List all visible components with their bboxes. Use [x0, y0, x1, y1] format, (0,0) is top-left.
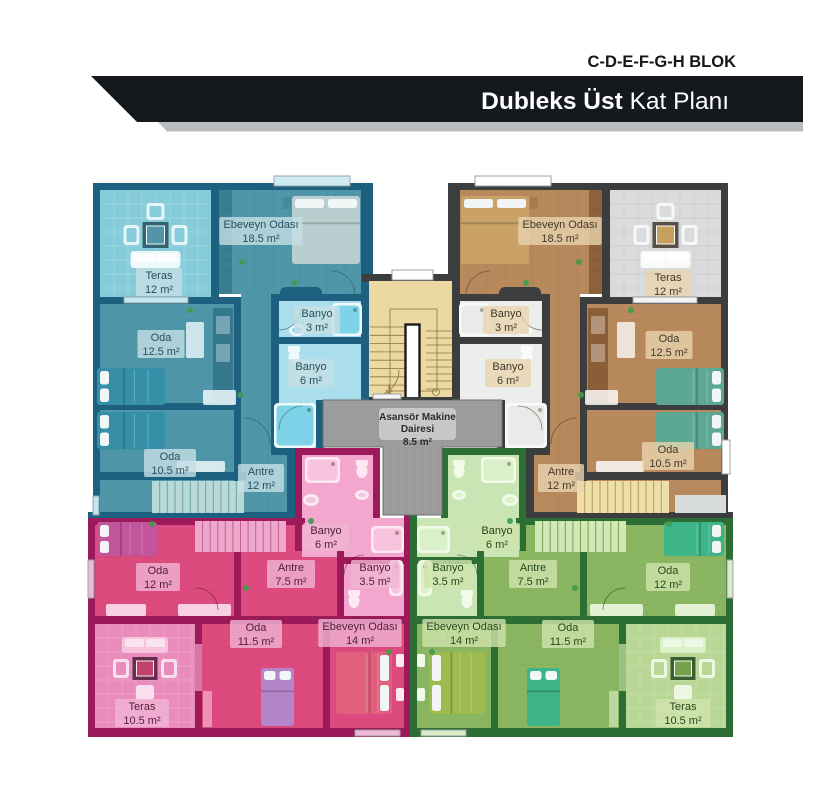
svg-text:Banyo: Banyo: [492, 361, 523, 373]
svg-text:18.5 m²: 18.5 m²: [541, 233, 579, 245]
svg-text:Ebeveyn Odası: Ebeveyn Odası: [426, 621, 501, 633]
svg-text:Oda: Oda: [160, 451, 182, 463]
svg-text:Ebeveyn Odası: Ebeveyn Odası: [322, 621, 397, 633]
svg-text:Teras: Teras: [129, 701, 156, 713]
svg-text:Oda: Oda: [658, 444, 680, 456]
svg-text:Teras: Teras: [146, 270, 173, 282]
svg-text:6 m²: 6 m²: [315, 539, 337, 551]
svg-text:Oda: Oda: [659, 333, 681, 345]
svg-text:Antre: Antre: [278, 562, 304, 574]
svg-text:Teras: Teras: [655, 272, 682, 284]
svg-text:Asansör Makine: Asansör Makine: [379, 412, 456, 423]
svg-text:Ebeveyn Odası: Ebeveyn Odası: [223, 219, 298, 231]
svg-text:6 m²: 6 m²: [300, 375, 322, 387]
svg-text:7.5 m²: 7.5 m²: [275, 576, 307, 588]
svg-text:Oda: Oda: [246, 622, 268, 634]
svg-text:Oda: Oda: [151, 332, 173, 344]
svg-text:12 m²: 12 m²: [247, 480, 275, 492]
svg-text:18.5 m²: 18.5 m²: [242, 233, 280, 245]
svg-text:3.5 m²: 3.5 m²: [432, 576, 464, 588]
svg-text:14 m²: 14 m²: [346, 635, 374, 647]
svg-text:6 m²: 6 m²: [497, 375, 519, 387]
svg-text:Oda: Oda: [148, 565, 170, 577]
svg-text:Banyo: Banyo: [295, 361, 326, 373]
svg-text:Banyo: Banyo: [432, 562, 463, 574]
svg-text:Banyo: Banyo: [301, 308, 332, 320]
svg-text:12 m²: 12 m²: [654, 286, 682, 298]
svg-text:10.5 m²: 10.5 m²: [664, 715, 702, 727]
svg-text:12 m²: 12 m²: [654, 579, 682, 591]
svg-text:7.5 m²: 7.5 m²: [517, 576, 549, 588]
svg-text:Teras: Teras: [670, 701, 697, 713]
svg-text:12 m²: 12 m²: [144, 579, 172, 591]
svg-text:Ebeveyn Odası: Ebeveyn Odası: [522, 219, 597, 231]
svg-text:Banyo: Banyo: [359, 562, 390, 574]
svg-text:8.5 m²: 8.5 m²: [403, 437, 433, 448]
svg-text:10.5 m²: 10.5 m²: [151, 465, 189, 477]
svg-text:Antre: Antre: [548, 466, 574, 478]
svg-text:3.5 m²: 3.5 m²: [359, 576, 391, 588]
svg-text:Antre: Antre: [520, 562, 546, 574]
svg-text:11.5 m²: 11.5 m²: [550, 636, 587, 648]
svg-text:Banyo: Banyo: [481, 525, 512, 537]
svg-text:Antre: Antre: [248, 466, 274, 478]
svg-text:Dubleks Üst Kat Planı: Dubleks Üst Kat Planı: [481, 88, 729, 115]
svg-text:Banyo: Banyo: [310, 525, 341, 537]
svg-text:12 m²: 12 m²: [145, 284, 173, 296]
svg-text:12 m²: 12 m²: [547, 480, 575, 492]
svg-text:Oda: Oda: [558, 622, 580, 634]
svg-text:12.5 m²: 12.5 m²: [650, 347, 688, 359]
svg-text:Oda: Oda: [658, 565, 680, 577]
svg-text:12.5 m²: 12.5 m²: [142, 346, 180, 358]
svg-text:3 m²: 3 m²: [495, 322, 517, 334]
svg-text:11.5 m²: 11.5 m²: [238, 636, 275, 648]
svg-text:10.5 m²: 10.5 m²: [649, 458, 687, 470]
svg-text:6 m²: 6 m²: [486, 539, 508, 551]
svg-text:3 m²: 3 m²: [306, 322, 328, 334]
svg-text:Banyo: Banyo: [490, 308, 521, 320]
svg-text:14 m²: 14 m²: [450, 635, 478, 647]
svg-text:Dairesi: Dairesi: [401, 424, 435, 435]
svg-text:10.5 m²: 10.5 m²: [123, 715, 161, 727]
svg-text:C-D-E-F-G-H BLOK: C-D-E-F-G-H BLOK: [588, 53, 737, 71]
